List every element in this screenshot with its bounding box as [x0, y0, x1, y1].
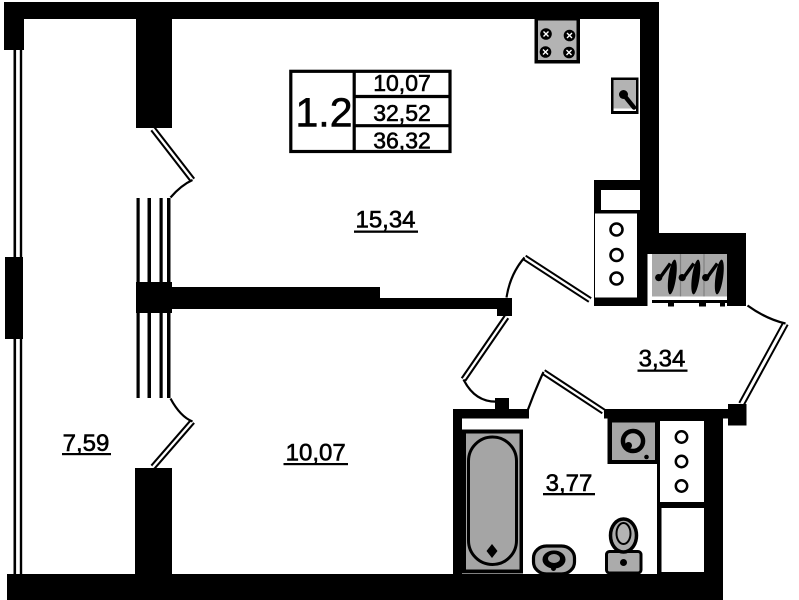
- svg-text:3,77: 3,77: [546, 470, 593, 497]
- svg-text:32,52: 32,52: [373, 100, 431, 126]
- svg-text:3,34: 3,34: [639, 346, 686, 373]
- svg-text:7,59: 7,59: [63, 430, 110, 457]
- svg-text:36,32: 36,32: [373, 128, 431, 154]
- svg-text:10,07: 10,07: [286, 440, 346, 467]
- svg-text:15,34: 15,34: [355, 207, 415, 234]
- svg-text:10,07: 10,07: [373, 70, 431, 96]
- svg-text:1.2: 1.2: [296, 90, 353, 136]
